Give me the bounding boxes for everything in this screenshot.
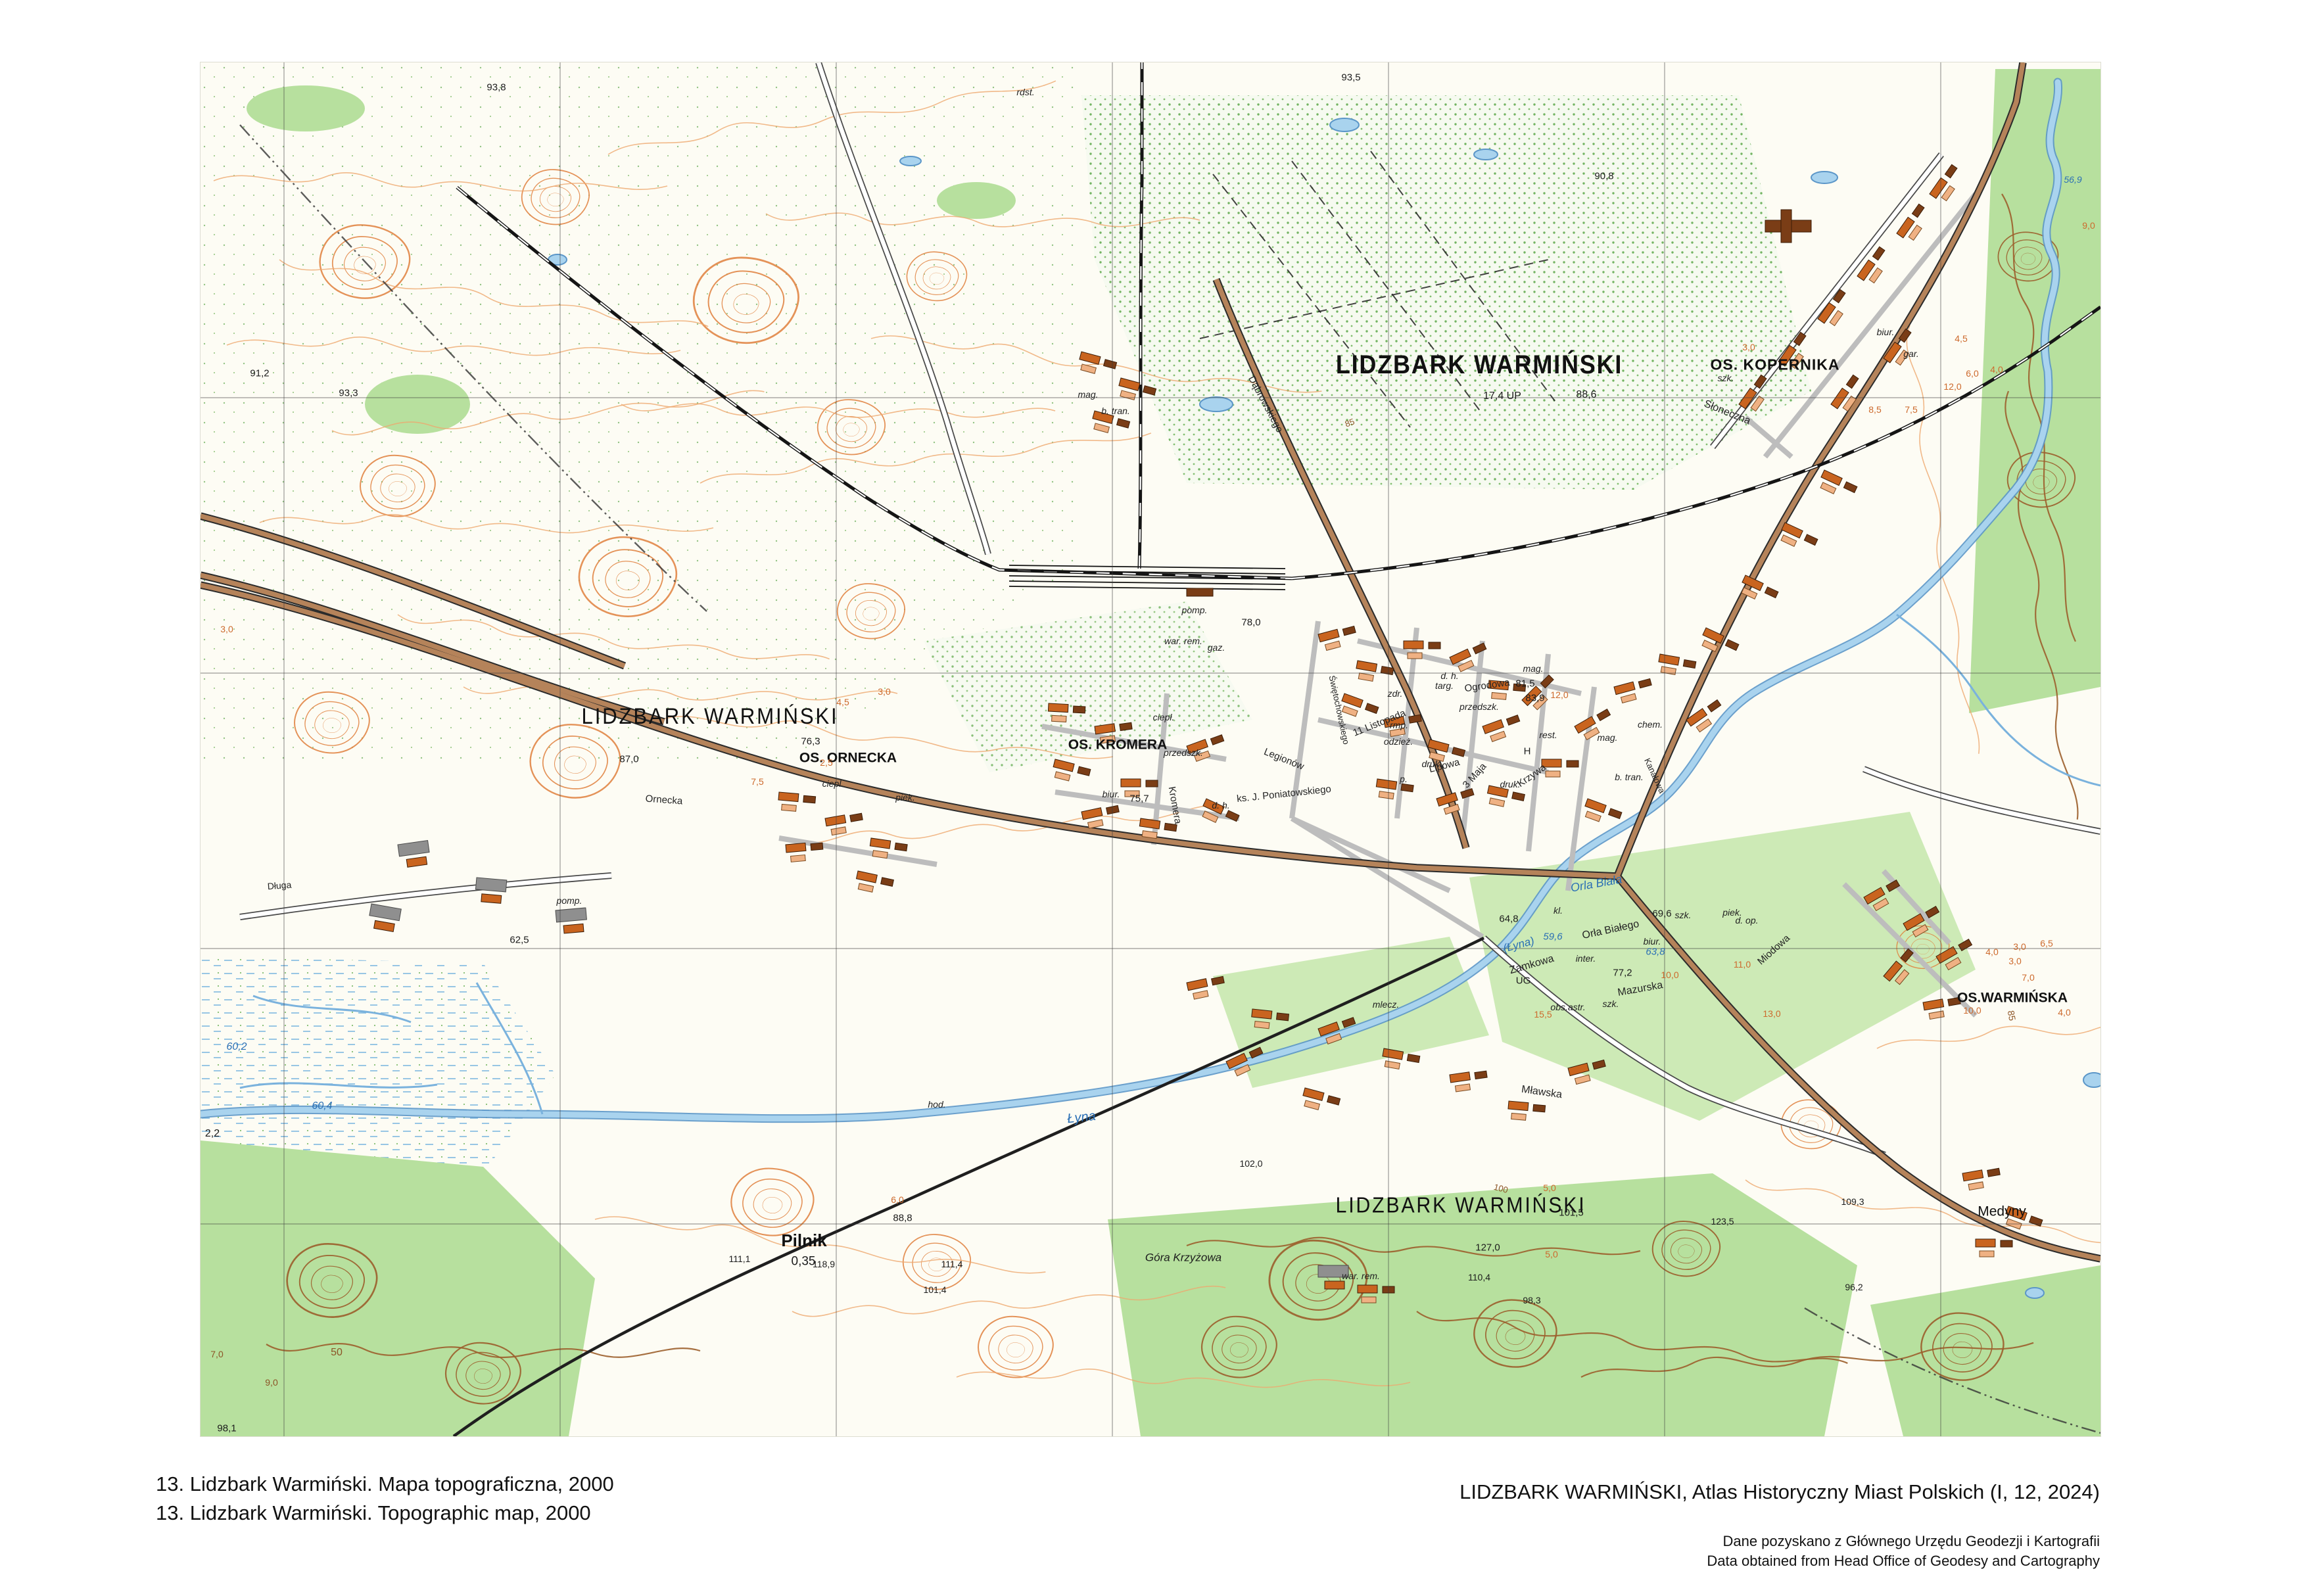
page: { "captions": { "left_line1": "13. Lidzb… bbox=[0, 0, 2301, 1596]
caption-right: LIDZBARK WARMIŃSKI, Atlas Historyczny Mi… bbox=[1459, 1480, 2100, 1571]
topographic-map: LIDZBARK WARMIŃSKI17,4 UP88,6OS. KOPERNI… bbox=[201, 62, 2100, 1436]
caption-left-line2: 13. Lidzbark Warmiński. Topographic map,… bbox=[156, 1499, 614, 1528]
station-building bbox=[1187, 588, 1213, 596]
caption-left-line1: 13. Lidzbark Warmiński. Mapa topograficz… bbox=[156, 1470, 614, 1499]
atlas-title: LIDZBARK WARMIŃSKI, Atlas Historyczny Mi… bbox=[1459, 1480, 2100, 1504]
map-terrain bbox=[201, 62, 2100, 1436]
caption-left: 13. Lidzbark Warmiński. Mapa topograficz… bbox=[156, 1470, 614, 1528]
credit-line-pl: Dane pozyskano z Głównego Urzędu Geodezj… bbox=[1459, 1532, 2100, 1551]
credit-line-en: Data obtained from Head Office of Geodes… bbox=[1459, 1551, 2100, 1571]
data-credits: Dane pozyskano z Głównego Urzędu Geodezj… bbox=[1459, 1532, 2100, 1571]
